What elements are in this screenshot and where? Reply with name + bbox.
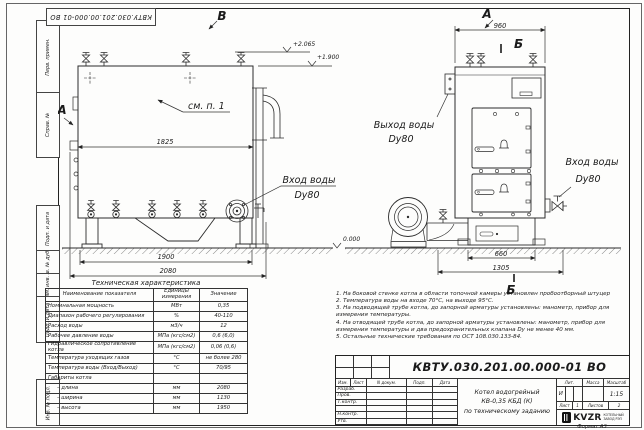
spec-cell: Рабочее давление воды bbox=[46, 332, 154, 342]
spec-row: – длинамм2080 bbox=[46, 384, 248, 394]
title-block-right: Лит. Масса Масштаб И 1:15 Лист 1 Листов … bbox=[557, 379, 629, 425]
mass-header: Масса bbox=[583, 379, 604, 387]
mass-value bbox=[583, 387, 604, 402]
note-3: 3. На подводящей трубе котла, до запорно… bbox=[336, 305, 620, 319]
spec-cell: – длина bbox=[46, 384, 154, 394]
drawing-sheet: Перв. примен. Справ. № Подп. и дата Инв.… bbox=[0, 0, 644, 430]
spec-cell: Диапазон рабочего регулирования bbox=[46, 312, 154, 322]
top-rotated-stamp-text: КВТУ.030.201.00.000-01 ВО bbox=[50, 13, 152, 21]
spec-header-value: Значение bbox=[200, 289, 248, 302]
spec-row: – высотамм1950 bbox=[46, 404, 248, 414]
spec-cell: % bbox=[154, 312, 200, 322]
product-name-line3: по техническому заданию bbox=[464, 407, 550, 417]
product-name: Котел водогрейный КВ-0,35 КБД (К) по тех… bbox=[458, 379, 557, 425]
sig-col-docnum: N докум. bbox=[367, 379, 407, 387]
spec-row: Температура уходящих газов°Сне более 280 bbox=[46, 354, 248, 364]
kvzr-logo-icon bbox=[562, 412, 571, 423]
product-name-line1: Котел водогрейный bbox=[475, 388, 540, 398]
spec-row: Рабочее давление водыМПа (кгс/см2)0,6 (6… bbox=[46, 332, 248, 342]
sheet-label: Лист bbox=[557, 402, 573, 410]
spec-table-title: Техническая характеристика bbox=[45, 279, 247, 287]
spec-cell: 12 bbox=[200, 322, 248, 332]
scale-value: 1:15 bbox=[604, 387, 629, 402]
spec-header-name: Наименование показателя bbox=[46, 289, 154, 302]
spec-cell: Температура воды (Вход/Выход) bbox=[46, 364, 154, 374]
technical-notes: 1. На боковой стенке котла в области топ… bbox=[336, 291, 620, 341]
spec-cell bbox=[200, 374, 248, 384]
spec-row: Температура воды (Вход/Выход)°С70/95 bbox=[46, 364, 248, 374]
sig-col-data: Дата bbox=[433, 379, 458, 387]
spec-cell: Номинальная мощность bbox=[46, 302, 154, 312]
kvzr-logo-text: KVZR bbox=[573, 413, 601, 423]
spec-cell: Расход воды bbox=[46, 322, 154, 332]
spec-cell: мм bbox=[154, 384, 200, 394]
margin-box-sprav-no: Справ. № bbox=[36, 92, 60, 158]
spec-table: Техническая характеристика Наименование … bbox=[45, 279, 247, 414]
spec-row: Габариты котла bbox=[46, 374, 248, 384]
spec-cell: 1950 bbox=[200, 404, 248, 414]
margin-box-podp-data-1: Подп. и дата bbox=[36, 205, 60, 252]
spec-cell bbox=[154, 374, 200, 384]
spec-cell: не более 280 bbox=[200, 354, 248, 364]
spec-row: – ширинамм1130 bbox=[46, 394, 248, 404]
margin-box-perv-primen: Перв. примен. bbox=[36, 20, 60, 94]
sig-col-podp: Подп. bbox=[407, 379, 433, 387]
spec-cell: 40-110 bbox=[200, 312, 248, 322]
spec-cell: Гидравлическое сопротивление котла bbox=[46, 342, 154, 354]
spec-cell: 0,6 (6,0) bbox=[200, 332, 248, 342]
margin-label: Перв. примен. bbox=[45, 38, 51, 76]
margin-label: Инв. № дубл. bbox=[45, 250, 51, 275]
spec-cell: 0,35 bbox=[200, 302, 248, 312]
sig-col-izm: Изм. bbox=[336, 379, 351, 387]
margin-label: Подп. и дата bbox=[45, 211, 51, 245]
title-block: КВТУ.030.201.00.000-01 ВО Изм. Лист N до… bbox=[335, 355, 630, 426]
spec-cell: Температура уходящих газов bbox=[46, 354, 154, 364]
spec-cell: м3/ч bbox=[154, 322, 200, 332]
note-1: 1. На боковой стенке котла в области топ… bbox=[336, 291, 620, 298]
scale-header: Масштаб bbox=[604, 379, 629, 387]
revision-grid bbox=[336, 356, 389, 379]
spec-cell: МПа (кгс/см2) bbox=[154, 332, 200, 342]
spec-cell: 0,06 (0,6) bbox=[200, 342, 248, 354]
sheets-label: Листов bbox=[583, 402, 609, 410]
note-2: 2. Температура воды на входе 70°С, на вы… bbox=[336, 298, 620, 305]
spec-row: Диапазон рабочего регулирования%40-110 bbox=[46, 312, 248, 322]
kvzr-caption-line2: ЗАВОД РЭП bbox=[603, 418, 623, 422]
spec-cell: 2080 bbox=[200, 384, 248, 394]
sheet-value: 1 bbox=[573, 402, 583, 410]
kvzr-logo-caption: КОТЕЛЬНЫЙ ЗАВОД РЭП bbox=[603, 414, 623, 421]
spec-row: Номинальная мощностьМВт0,35 bbox=[46, 302, 248, 312]
product-name-line2: КВ-0,35 КБД (К) bbox=[481, 397, 532, 407]
format-label: Формат А3 bbox=[556, 424, 628, 430]
margin-label: Справ. № bbox=[45, 113, 51, 137]
doc-number: КВТУ.030.201.00.000-01 ВО bbox=[389, 356, 629, 379]
margin-box-inv-dubl: Инв. № дубл. bbox=[36, 250, 60, 275]
sig-role-utv: Утв. bbox=[336, 419, 367, 425]
spec-row: Расход водым3/ч12 bbox=[46, 322, 248, 332]
spec-cell: Габариты котла bbox=[46, 374, 154, 384]
factory-logo: KVZR КОТЕЛЬНЫЙ ЗАВОД РЭП bbox=[557, 410, 629, 425]
spec-cell: °С bbox=[154, 354, 200, 364]
spec-cell: мм bbox=[154, 394, 200, 404]
note-5: 5. Остальные технические требования по О… bbox=[336, 334, 620, 341]
top-rotated-stamp: КВТУ.030.201.00.000-01 ВО bbox=[46, 8, 156, 26]
spec-cell: °С bbox=[154, 364, 200, 374]
spec-cell: – ширина bbox=[46, 394, 154, 404]
spec-cell: мм bbox=[154, 404, 200, 414]
sig-col-list: Лист bbox=[351, 379, 367, 387]
lit-value: И bbox=[557, 387, 566, 402]
sheets-value: 2 bbox=[609, 402, 629, 410]
spec-row: Гидравлическое сопротивление котлаМПа (к… bbox=[46, 342, 248, 354]
lit-header: Лит. bbox=[557, 379, 583, 387]
spec-cell: 70/95 bbox=[200, 364, 248, 374]
spec-cell: – высота bbox=[46, 404, 154, 414]
spec-cell: МПа (кгс/см2) bbox=[154, 342, 200, 354]
spec-header-units: Единицы измерения bbox=[154, 289, 200, 302]
signature-grid: Изм. Лист N докум. Подп. Дата Разраб. Пр… bbox=[336, 379, 458, 425]
spec-cell: 1130 bbox=[200, 394, 248, 404]
spec-header-row: Наименование показателя Единицы измерени… bbox=[46, 289, 248, 302]
spec-cell: МВт bbox=[154, 302, 200, 312]
note-4: 4. На отводящей трубе котла, до запорной… bbox=[336, 320, 620, 334]
